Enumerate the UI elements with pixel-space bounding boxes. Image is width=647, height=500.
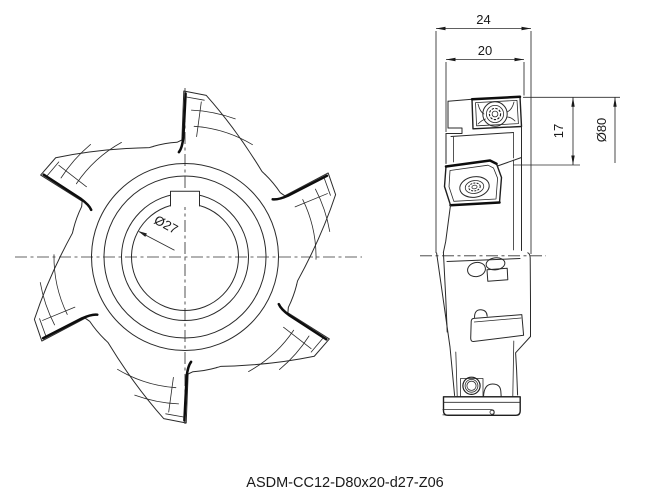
insert-screw: [458, 175, 490, 200]
dim-label-cutting-depth: 17: [551, 124, 566, 138]
dim-label-body-width: 20: [478, 43, 492, 58]
keyway-mask: [171, 191, 200, 208]
coolant-port: [466, 261, 487, 278]
lower-body: [443, 347, 520, 415]
cutter-tooth: [217, 271, 345, 409]
cutter-tooth: [153, 91, 265, 174]
cutter-tooth: [25, 105, 153, 243]
dimension-80: Ø80: [594, 97, 617, 163]
bore-leader: Ø27: [138, 212, 180, 250]
technical-drawing-canvas: Ø27: [0, 0, 647, 500]
cutter-tooth: [105, 340, 217, 423]
bottom-rail: [444, 397, 521, 416]
dim-label-outer-diameter: Ø80: [594, 118, 609, 143]
top-insert: [446, 97, 522, 134]
torx-socket-icon: [468, 182, 481, 192]
dim-label-overall-width: 24: [476, 12, 490, 27]
side-insert: [445, 161, 502, 206]
drawing-caption: ASDM-CC12-D80x20-d27-Z06: [246, 475, 443, 491]
front-view: Ø27: [1, 88, 368, 424]
side-view: [420, 97, 546, 416]
upper-body: [446, 127, 522, 167]
bore-diameter-label: Ø27: [152, 212, 181, 237]
mid-body: [437, 160, 531, 396]
torx-socket-icon: [489, 108, 500, 119]
drawing-page: Ø27: [0, 0, 647, 500]
